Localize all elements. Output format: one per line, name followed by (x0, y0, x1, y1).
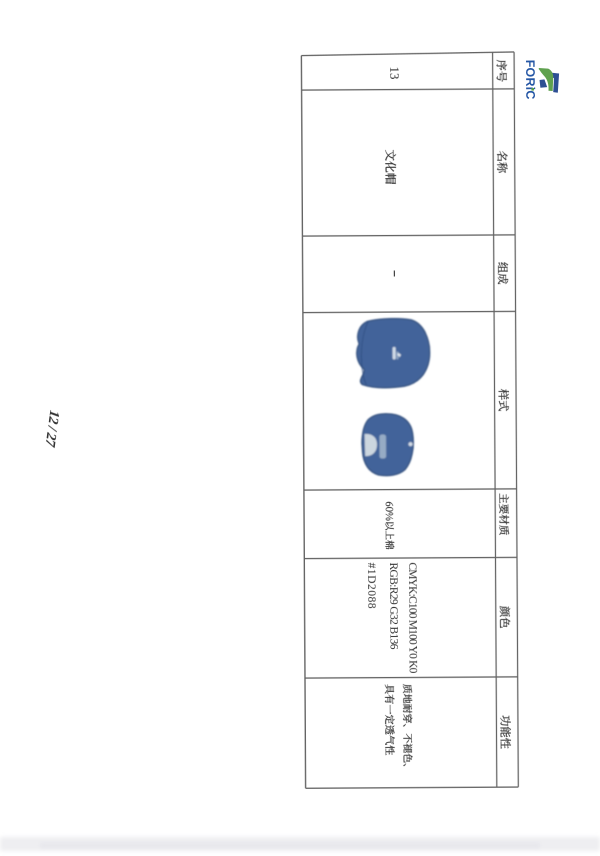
svg-text:12 / 27: 12 / 27 (42, 408, 62, 449)
svg-text:CMYK:C100 M100 Y0 K0: CMYK:C100 M100 Y0 K0 (406, 562, 419, 673)
svg-text:RGB:R29 G32 B136: RGB:R29 G32 B136 (387, 562, 400, 649)
svg-text:FORiC: FORiC (523, 60, 537, 100)
svg-text:13: 13 (387, 66, 402, 79)
svg-text:#1D2088: #1D2088 (365, 563, 377, 609)
